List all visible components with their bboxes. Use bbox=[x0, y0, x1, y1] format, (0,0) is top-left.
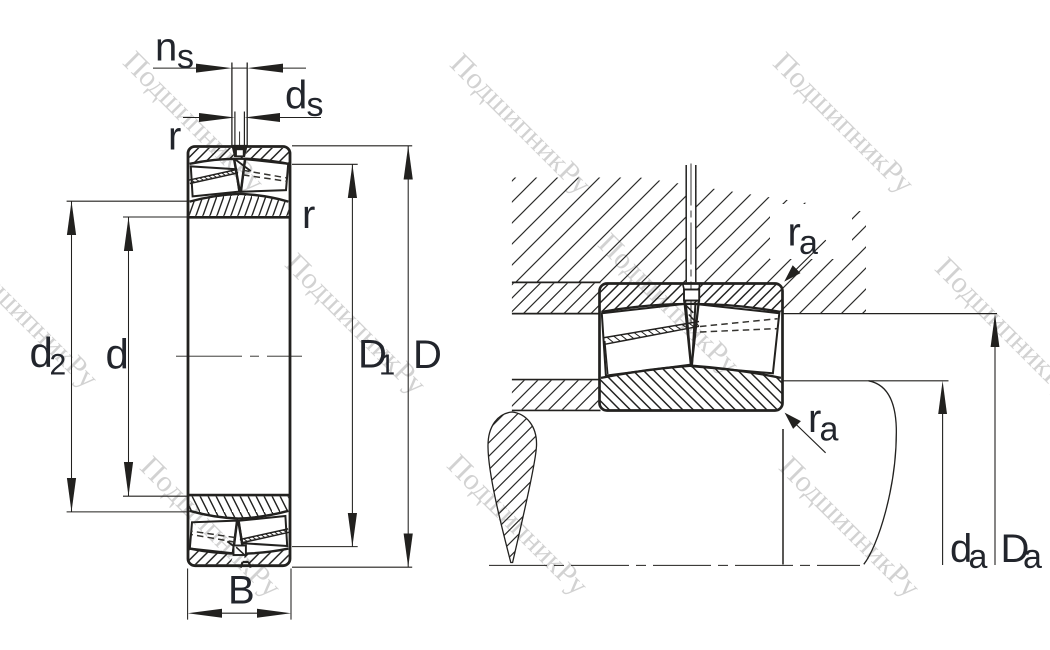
svg-text:d: d bbox=[285, 74, 307, 118]
svg-text:B: B bbox=[228, 569, 255, 613]
svg-text:d: d bbox=[106, 331, 129, 378]
svg-text:a: a bbox=[969, 538, 988, 576]
svg-text:a: a bbox=[1023, 538, 1042, 576]
svg-text:s: s bbox=[307, 86, 324, 124]
svg-text:a: a bbox=[820, 411, 839, 449]
svg-text:a: a bbox=[799, 224, 818, 262]
svg-text:2: 2 bbox=[50, 349, 67, 382]
svg-text:D: D bbox=[413, 333, 442, 377]
svg-text:n: n bbox=[155, 26, 177, 70]
svg-text:r: r bbox=[302, 193, 315, 237]
svg-text:s: s bbox=[177, 38, 194, 76]
svg-text:1: 1 bbox=[379, 350, 395, 382]
svg-text:r: r bbox=[168, 115, 181, 159]
